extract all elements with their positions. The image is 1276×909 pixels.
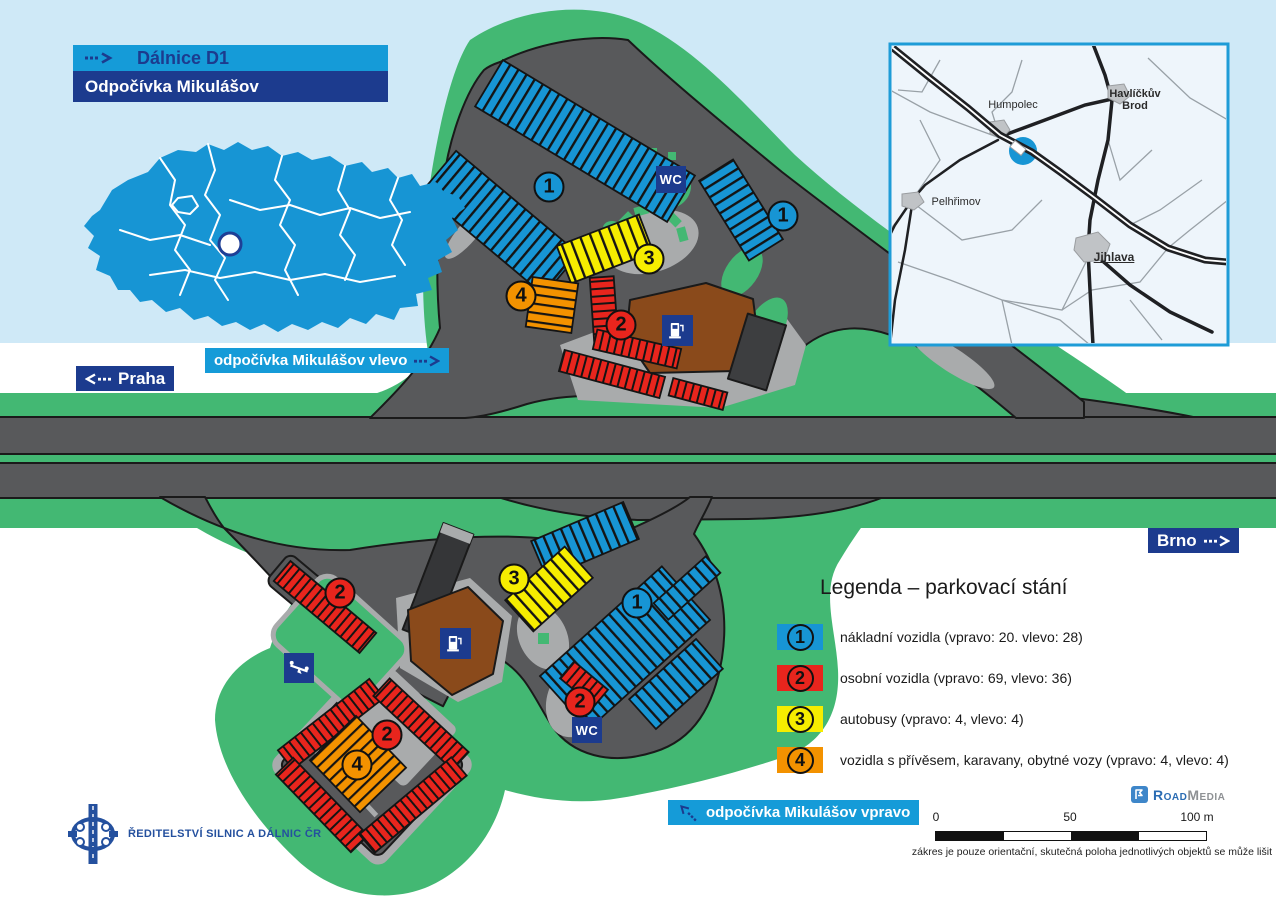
city-label-havlickuv-brod: Havlíčkův Brod [1102,88,1168,112]
badge-car: 2 [325,578,356,609]
badge-car: 2 [606,310,637,341]
wc-sign-lower: WC [572,717,602,743]
direction-label-vpravo: odpočívka Mikulášov vpravo [668,800,919,825]
roadmedia-brand: RoadMedia [1131,786,1225,803]
badge-bus: 3 [499,564,530,595]
agency-name: ŘEDITELSTVÍ SILNIC A DÁLNIC ČR [128,828,321,840]
badge-car: 2 [372,720,403,751]
rest-area-title: Odpočívka Mikulášov [85,77,259,97]
badge-bus: 3 [634,244,665,275]
disclaimer-note: zákres je pouze orientační, skutečná pol… [852,846,1272,858]
carriageway-brno [0,463,1276,498]
scale-bar [935,831,1207,841]
badge-caravan: 4 [506,281,537,312]
carriageway-praha [0,417,1276,454]
roadmedia-logo-icon [1131,786,1148,803]
badge-truck: 1 [534,172,565,203]
badge-car: 2 [565,687,596,718]
locator-marker [219,233,241,255]
city-label-humpolec: Humpolec [978,99,1048,111]
highway-title: Dálnice D1 [137,48,229,69]
scale-tick-0: 0 [926,810,946,824]
header-site-bar: Odpočívka Mikulášov [73,71,388,102]
legend-swatch-truck: 1 [777,624,823,650]
legend-item-bus: 3 autobusy (vpravo: 4, vlevo: 4) [777,706,1024,732]
legend-title: Legenda – parkovací stání [820,576,1068,600]
legend-swatch-car: 2 [777,665,823,691]
arrow-right-icon [1204,535,1230,547]
fuel-station-icon [440,628,471,659]
arrow-left-icon [85,373,111,385]
arrow-right-icon [414,355,440,367]
rsd-logo-icon [66,802,120,866]
arrow-right-icon [85,52,113,64]
playground-icon [284,653,314,683]
legend-swatch-caravan: 4 [777,747,823,773]
city-label-jihlava: Jihlava [1082,251,1146,264]
direction-label-praha: Praha [76,366,174,391]
arrow-up-left-icon [676,800,700,824]
fuel-station-icon [662,315,693,346]
scale-tick-50: 50 [1050,810,1090,824]
wc-sign-upper: WC [656,166,686,193]
legend-item-truck: 1 nákladní vozidla (vpravo: 20. vlevo: 2… [777,624,1083,650]
badge-truck: 1 [622,588,653,619]
legend-item-caravan: 4 vozidla s přívěsem, karavany, obytné v… [777,747,1229,773]
regional-inset-map [880,44,1228,345]
header-road-bar: Dálnice D1 [73,45,388,71]
direction-label-vlevo: odpočívka Mikulášov vlevo [205,348,449,373]
city-label-pelhrimov: Pelhřimov [920,196,992,208]
scale-tick-100: 100 m [1166,810,1228,824]
badge-truck: 1 [768,201,799,232]
rest-area-map-page: Dálnice D1 Odpočívka Mikulášov Praha odp… [0,0,1276,909]
direction-label-brno: Brno [1148,528,1239,553]
legend-item-car: 2 osobní vozidla (vpravo: 69, vlevo: 36) [777,665,1072,691]
legend-swatch-bus: 3 [777,706,823,732]
badge-caravan: 4 [342,750,373,781]
